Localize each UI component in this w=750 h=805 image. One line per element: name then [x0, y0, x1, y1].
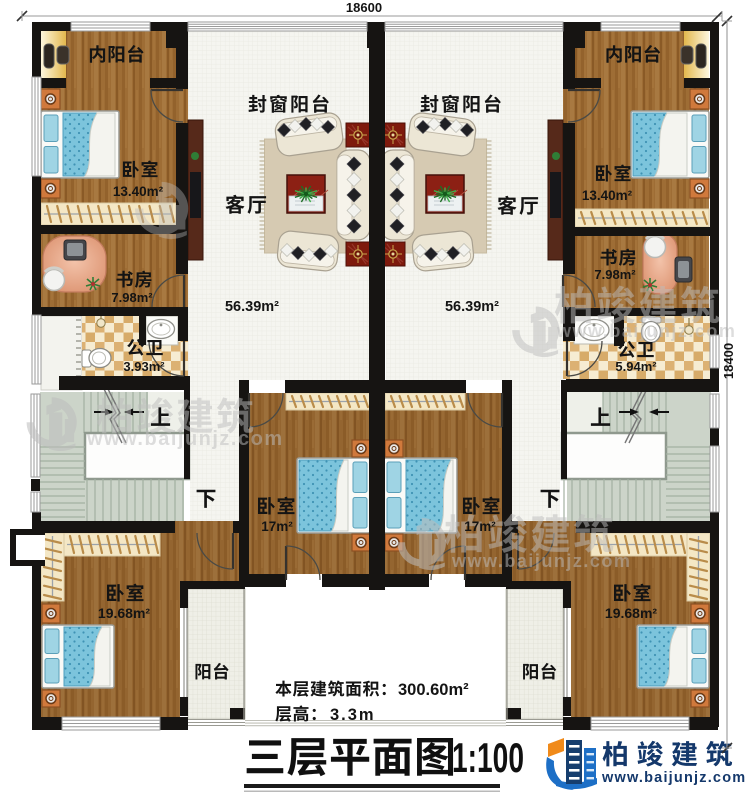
- svg-text:19.68m²: 19.68m²: [605, 605, 657, 621]
- svg-text:5.94m²: 5.94m²: [615, 359, 657, 374]
- svg-text:56.39m²: 56.39m²: [225, 299, 279, 315]
- svg-text:www.baijunjz.com: www.baijunjz.com: [556, 321, 736, 341]
- svg-text:13.40m²: 13.40m²: [582, 188, 633, 203]
- svg-text:18600: 18600: [346, 0, 382, 15]
- svg-text:www.baijunjz.com: www.baijunjz.com: [86, 428, 284, 450]
- svg-text:7.98m²: 7.98m²: [594, 267, 636, 282]
- svg-text:300.60m²: 300.60m²: [398, 681, 469, 699]
- svg-text:1:100: 1:100: [452, 734, 524, 781]
- svg-text:19.68m²: 19.68m²: [98, 605, 150, 621]
- svg-text:17m²: 17m²: [261, 519, 293, 534]
- svg-text:17m²: 17m²: [464, 519, 496, 534]
- svg-text:13.40m²: 13.40m²: [113, 184, 164, 199]
- svg-text:18400: 18400: [721, 343, 736, 379]
- svg-text:3.3m: 3.3m: [330, 706, 376, 724]
- svg-text:3.93m²: 3.93m²: [123, 359, 165, 374]
- svg-text:56.39m²: 56.39m²: [445, 299, 499, 315]
- svg-text:www.baijunjz.com: www.baijunjz.com: [451, 551, 631, 571]
- svg-text:7.98m²: 7.98m²: [111, 290, 153, 305]
- svg-text:www.baijunjz.com: www.baijunjz.com: [601, 770, 746, 786]
